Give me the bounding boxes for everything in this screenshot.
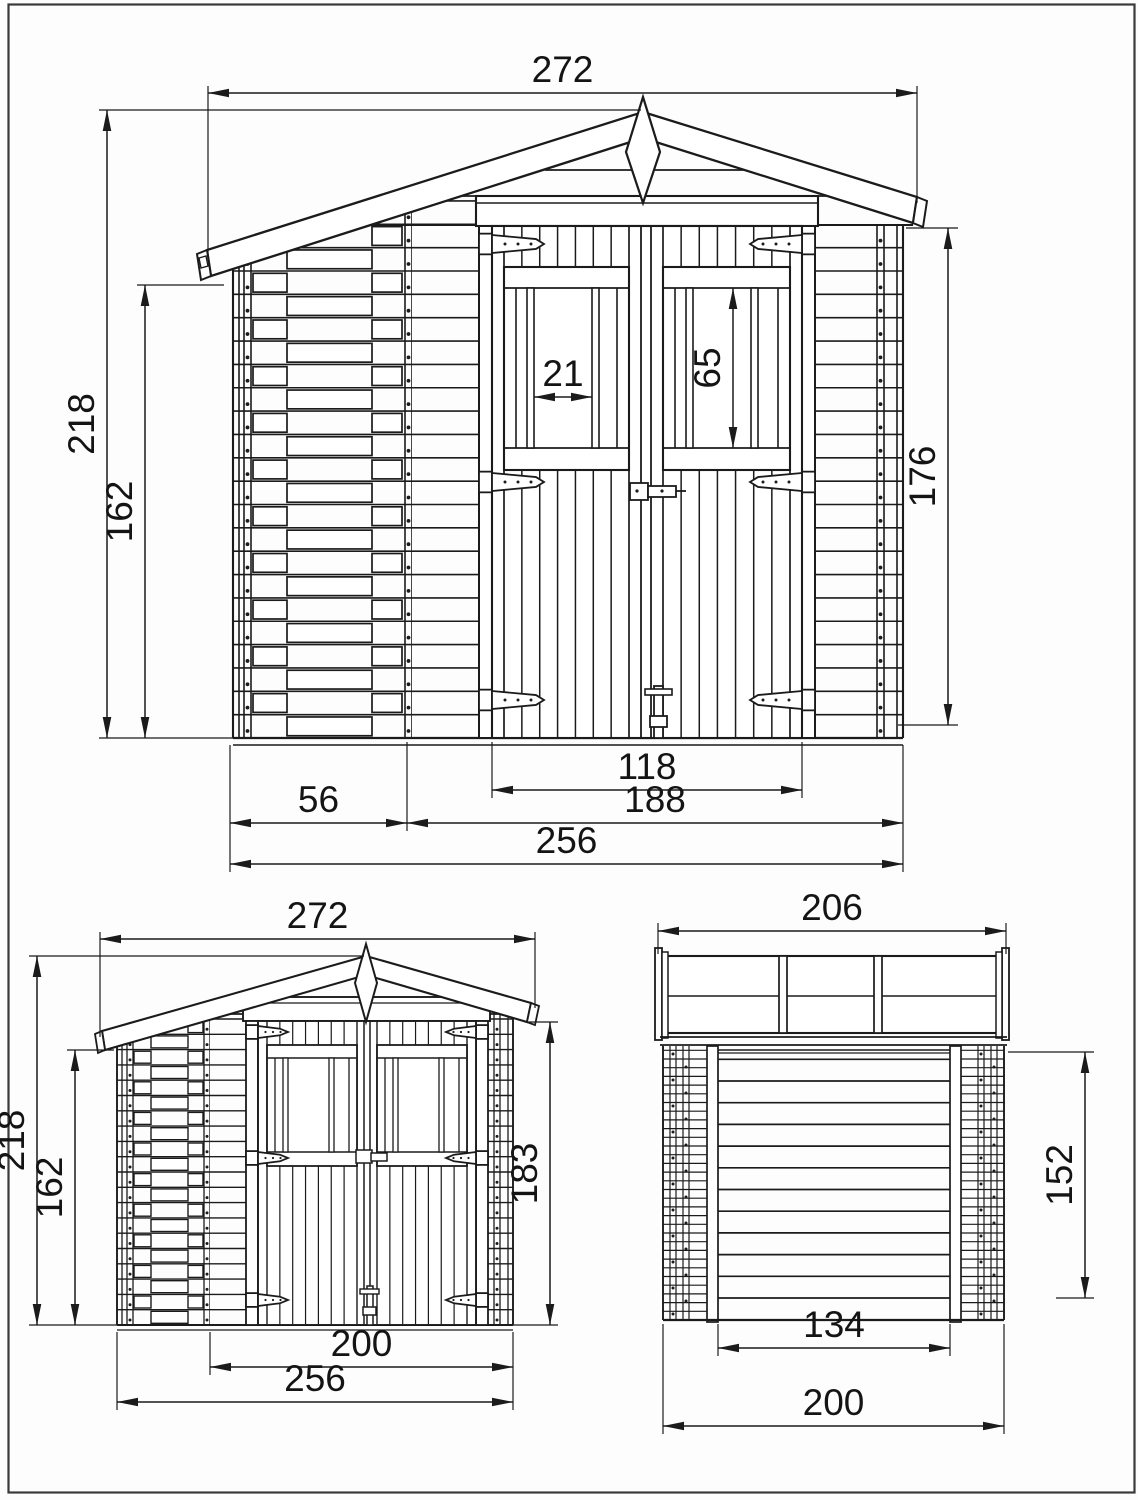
dim-front-right-wall-height: 176: [902, 446, 943, 508]
dim-side-roof-depth: 206: [801, 887, 863, 928]
dim-front-total-height: 218: [61, 393, 102, 455]
dim-window-pane-width: 21: [542, 353, 583, 394]
shed-technical-drawing: 272218162176216511856188256 272218162183…: [0, 0, 1138, 1500]
dim-front-base-width: 256: [536, 820, 598, 861]
dim-front-roof-width: 272: [532, 49, 594, 90]
dim-small-eave-height: 183: [504, 1143, 545, 1205]
dim-small-roof-width: 272: [287, 895, 349, 936]
dim-side-inner-span: 134: [803, 1304, 865, 1345]
dim-door-bay-width: 188: [624, 779, 686, 820]
dim-left-bay-width: 56: [298, 779, 339, 820]
technical-drawing-page: 272218162176216511856188256 272218162183…: [0, 0, 1138, 1500]
dim-front-wall-height: 162: [99, 481, 140, 543]
dim-small-base-width: 256: [284, 1358, 346, 1399]
dim-window-height: 65: [687, 347, 728, 388]
dim-small-total-height: 218: [0, 1110, 32, 1172]
dim-side-wall-height: 152: [1039, 1144, 1080, 1206]
dim-side-base-depth: 200: [803, 1382, 865, 1423]
dim-small-wall-height: 162: [29, 1157, 70, 1219]
